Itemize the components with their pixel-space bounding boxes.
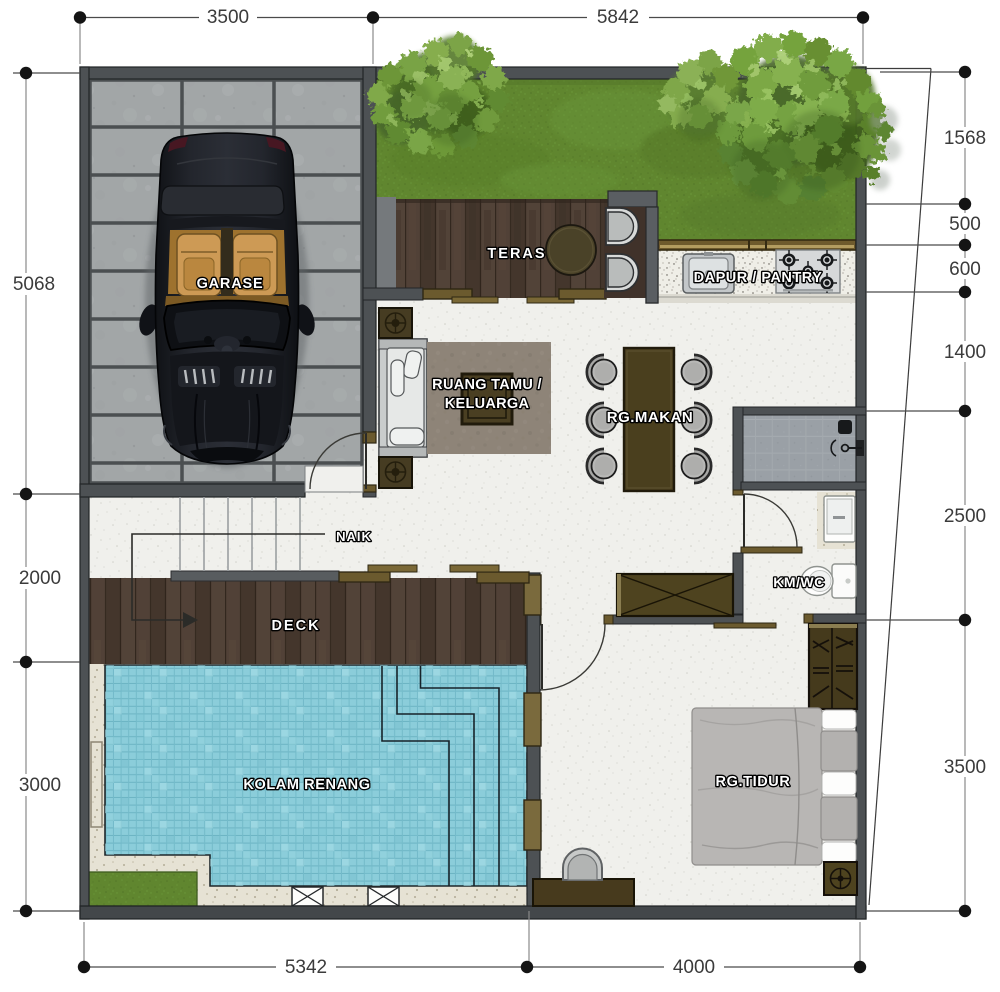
svg-text:DAPUR / PANTRY: DAPUR / PANTRY — [694, 270, 823, 286]
svg-text:RG.MAKAN: RG.MAKAN — [607, 409, 694, 426]
svg-text:5068: 5068 — [13, 274, 55, 295]
svg-text:3000: 3000 — [19, 775, 61, 796]
svg-text:KOLAM RENANG: KOLAM RENANG — [243, 777, 370, 793]
svg-text:3500: 3500 — [207, 7, 249, 28]
svg-text:4000: 4000 — [673, 957, 715, 978]
svg-text:1400: 1400 — [944, 342, 986, 363]
svg-text:600: 600 — [949, 259, 981, 280]
svg-text:DECK: DECK — [271, 618, 320, 634]
svg-text:TERAS: TERAS — [487, 246, 546, 262]
svg-text:500: 500 — [949, 214, 981, 235]
svg-text:2500: 2500 — [944, 506, 986, 527]
svg-text:GARASE: GARASE — [197, 276, 264, 292]
svg-text:NAIK: NAIK — [336, 529, 372, 544]
svg-text:5342: 5342 — [285, 957, 327, 978]
svg-text:3500: 3500 — [944, 757, 986, 778]
svg-text:RG.TIDUR: RG.TIDUR — [716, 774, 791, 790]
svg-text:1568: 1568 — [944, 128, 986, 149]
svg-text:RUANG TAMU /: RUANG TAMU / — [432, 377, 542, 393]
svg-text:KM/WC: KM/WC — [773, 574, 825, 590]
svg-text:5842: 5842 — [597, 7, 639, 28]
svg-text:2000: 2000 — [19, 568, 61, 589]
svg-text:KELUARGA: KELUARGA — [445, 396, 530, 412]
